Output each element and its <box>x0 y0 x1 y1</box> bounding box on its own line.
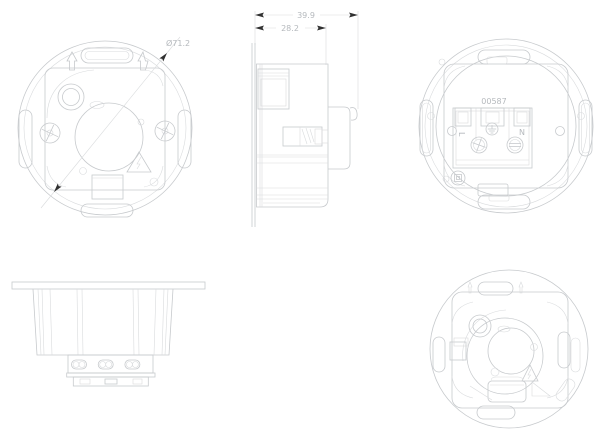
base-strips <box>67 373 155 386</box>
up-arrow-icon <box>67 52 77 70</box>
cable-gland-ring <box>469 315 491 337</box>
overall-depth-label: 39.9 <box>297 11 315 20</box>
side-elevation-view <box>8 278 212 390</box>
live-terminal-label: L <box>457 132 466 137</box>
terminal-housing <box>68 355 153 373</box>
cable-entry-slot <box>98 360 113 369</box>
slotted-screw-icon <box>507 137 523 153</box>
cable-entry-slot <box>125 360 140 369</box>
body-depth-dimension: 28.2 <box>255 24 326 33</box>
cable-gland-ring <box>58 84 84 110</box>
cable-entry-slot <box>72 360 87 369</box>
tapered-body <box>33 289 173 355</box>
up-arrow-icon <box>468 282 472 293</box>
bottom-cable-box <box>488 377 550 402</box>
side-section-view: 39.9 28.2 <box>243 3 365 229</box>
upper-compartment-detail <box>258 69 289 109</box>
up-arrow-icon <box>519 282 523 293</box>
phillips-screw-icon <box>37 120 64 147</box>
part-number-label: 00587 <box>481 97 506 106</box>
flange-profile <box>12 282 205 289</box>
technical-drawing-canvas: Ø71.2 39.9 28.2 <box>0 0 602 440</box>
rear-terminal-view: 00587 L N <box>415 28 597 226</box>
neutral-terminal-label: N <box>519 128 525 137</box>
plate-outline <box>430 270 588 428</box>
front-view: Ø71.2 <box>8 20 204 232</box>
central-mount-hole <box>75 102 144 175</box>
dimension-extension-lines <box>255 11 358 109</box>
mid-latch-detail <box>283 127 328 146</box>
bayonet-clip-profile <box>328 107 357 169</box>
earth-icon <box>486 123 498 135</box>
rear-plate-outline <box>419 39 593 213</box>
bottom-perspective-view <box>428 266 594 434</box>
terminal-block: L N <box>453 108 532 168</box>
phillips-screw-icon <box>469 135 490 156</box>
overall-depth-dimension: 39.9 <box>255 11 358 20</box>
cable-entry-box <box>92 175 158 199</box>
body-depth-label: 28.2 <box>281 24 299 33</box>
diameter-dimension-label: Ø71.2 <box>166 38 190 48</box>
perimeter-slots <box>420 50 592 209</box>
side-latch <box>450 338 492 400</box>
perimeter-slots <box>433 282 580 419</box>
flange-profile <box>252 43 255 227</box>
bottom-cable-box <box>478 184 508 196</box>
high-voltage-warning-icon <box>127 152 151 172</box>
body-profile <box>257 64 329 207</box>
